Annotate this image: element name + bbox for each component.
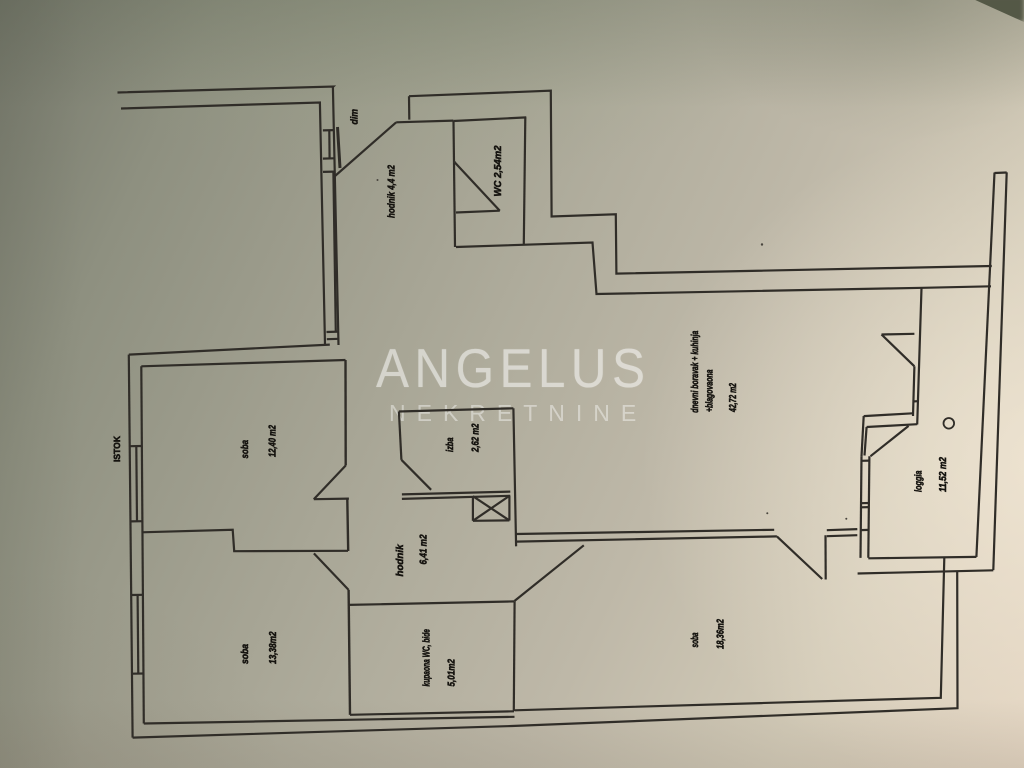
svg-text:kupaona WC, bide: kupaona WC, bide <box>422 629 433 687</box>
svg-text:6,41 m2: 6,41 m2 <box>419 534 430 564</box>
svg-text:soba: soba <box>690 632 701 647</box>
svg-text:loggia: loggia <box>914 470 925 492</box>
svg-text:hodnik: hodnik <box>395 544 406 576</box>
svg-text:18,36m2: 18,36m2 <box>716 619 727 649</box>
svg-text:2,62 m2: 2,62 m2 <box>471 423 482 453</box>
svg-text:dim: dim <box>350 109 361 125</box>
svg-text:12,40 m2: 12,40 m2 <box>268 425 279 457</box>
svg-text:WC 2,54m2: WC 2,54m2 <box>493 145 504 196</box>
svg-text:soba: soba <box>240 644 251 664</box>
svg-text:soba: soba <box>240 440 251 459</box>
svg-text:42,72 m2: 42,72 m2 <box>728 383 739 413</box>
svg-text:hodnik 4,4 m2: hodnik 4,4 m2 <box>387 165 398 218</box>
svg-text:ISTOK: ISTOK <box>112 436 122 462</box>
svg-text:13,38m2: 13,38m2 <box>268 631 279 664</box>
svg-text:11,52 m2: 11,52 m2 <box>938 457 949 492</box>
svg-text:5,01m2: 5,01m2 <box>447 659 458 687</box>
svg-text:izba: izba <box>445 437 456 452</box>
svg-text:dnevni boravak + kuhinja: dnevni boravak + kuhinja <box>690 330 701 412</box>
svg-text:+blagovaona: +blagovaona <box>705 369 716 412</box>
